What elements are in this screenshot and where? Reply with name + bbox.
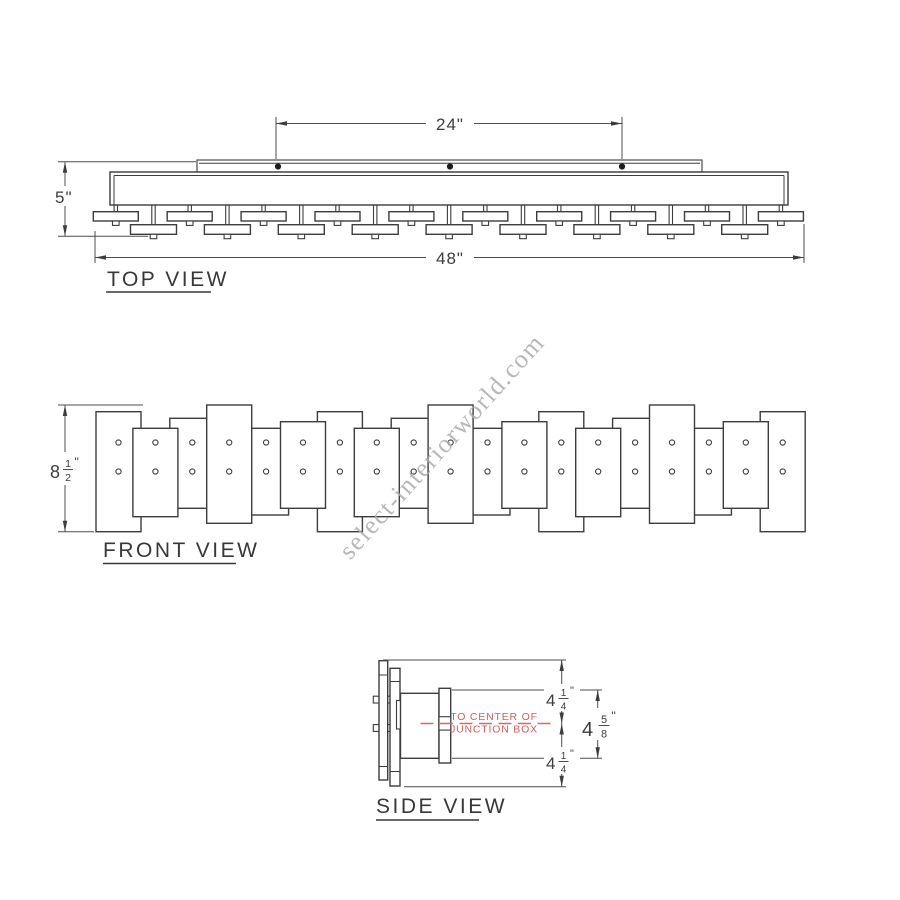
dim-8-den: 2 bbox=[65, 472, 71, 484]
bar-tab bbox=[372, 234, 379, 238]
bar-tab bbox=[186, 221, 193, 225]
panel-hole bbox=[264, 440, 269, 445]
panel-hole bbox=[116, 440, 121, 445]
bar-stem bbox=[114, 205, 117, 212]
mount-screw-dot bbox=[447, 163, 453, 169]
dim-overall-whole: 4 bbox=[582, 719, 593, 741]
bar-stem bbox=[705, 205, 708, 212]
glass-bar-bottom bbox=[204, 225, 250, 235]
side-view-title: SIDE VIEW bbox=[376, 795, 507, 818]
top-view-title: TOP VIEW bbox=[107, 268, 229, 291]
panel-hole bbox=[374, 469, 379, 474]
bar-tab bbox=[668, 234, 675, 238]
bar-stem bbox=[336, 205, 339, 212]
dim-24: 24" bbox=[276, 113, 622, 159]
bar-tab bbox=[704, 221, 711, 225]
panel-hole bbox=[743, 440, 748, 445]
panel-hole bbox=[522, 440, 527, 445]
panel-hole bbox=[300, 469, 305, 474]
panel-hole bbox=[633, 469, 638, 474]
glass-bar-top bbox=[611, 212, 656, 221]
bar-tab bbox=[150, 234, 157, 238]
panel-hole bbox=[411, 440, 416, 445]
panel-hole bbox=[153, 469, 158, 474]
dim-upper-num: 1 bbox=[561, 688, 567, 699]
bar-stem bbox=[188, 205, 191, 212]
panel-hole bbox=[596, 469, 601, 474]
panel-hole bbox=[374, 440, 379, 445]
bar-stem bbox=[152, 205, 155, 225]
glass-bar-bottom bbox=[426, 225, 472, 235]
panel-hole bbox=[190, 440, 195, 445]
glass-bar-bottom bbox=[278, 225, 324, 235]
bar-stem bbox=[374, 205, 377, 225]
glass-bar-top bbox=[685, 212, 730, 221]
technical-drawing: 24" 5" 48" TOP VIEW bbox=[0, 0, 900, 900]
front-view-title: FRONT VIEW bbox=[103, 539, 259, 562]
glass-edge-front-row bbox=[379, 661, 388, 780]
dim-lower-num: 1 bbox=[561, 751, 567, 762]
glass-bar-top bbox=[315, 212, 360, 221]
dim-48-label: 48" bbox=[436, 249, 464, 268]
panel-hole bbox=[780, 440, 785, 445]
panel-hole bbox=[669, 469, 674, 474]
bar-tab bbox=[520, 234, 527, 238]
panel-hole bbox=[227, 440, 232, 445]
bar-tab bbox=[594, 234, 601, 238]
dim-upper-den: 4 bbox=[561, 702, 567, 713]
bar-stem bbox=[743, 205, 746, 225]
dim-24-label: 24" bbox=[436, 115, 464, 134]
bar-stem bbox=[484, 205, 487, 212]
panel-hole bbox=[559, 440, 564, 445]
bar-stem bbox=[226, 205, 229, 225]
glass-bar-top bbox=[463, 212, 508, 221]
glass-bar-top bbox=[167, 212, 212, 221]
panel-hole bbox=[669, 440, 674, 445]
bar-stem bbox=[558, 205, 561, 212]
bar-stem bbox=[779, 205, 782, 212]
dim-overall-den: 8 bbox=[601, 729, 607, 741]
glass-panel bbox=[207, 405, 252, 523]
dim-8-num: 1 bbox=[65, 458, 71, 470]
glass-bar-bottom bbox=[574, 225, 620, 235]
dim-upper-inch: " bbox=[570, 685, 574, 697]
panel-hole bbox=[743, 469, 748, 474]
bar-stem bbox=[262, 205, 265, 212]
bar-tab bbox=[408, 221, 415, 225]
dim-8-whole: 8 bbox=[50, 462, 60, 482]
glass-bar-bottom bbox=[500, 225, 546, 235]
panel-hole bbox=[485, 469, 490, 474]
bar-stem bbox=[631, 205, 634, 212]
dim-overall-num: 5 bbox=[601, 714, 607, 726]
bar-stem bbox=[669, 205, 672, 225]
panel-hole bbox=[116, 469, 121, 474]
bar-tab bbox=[334, 221, 341, 225]
panel-hole bbox=[264, 469, 269, 474]
glass-bar-stems bbox=[114, 205, 783, 225]
panel-hole bbox=[633, 440, 638, 445]
bar-tab bbox=[224, 234, 231, 238]
bar-tab bbox=[446, 234, 453, 238]
mount-screw-dot bbox=[619, 163, 625, 169]
bar-stem bbox=[595, 205, 598, 225]
junction-box-body bbox=[401, 693, 440, 758]
junction-note-line2: JUNCTION BOX bbox=[450, 724, 538, 736]
panel-hole bbox=[780, 469, 785, 474]
glass-panel bbox=[281, 422, 326, 509]
glass-bar-bottom bbox=[131, 225, 177, 235]
dim-lower-inch: " bbox=[570, 748, 574, 760]
dim-8-inch: " bbox=[75, 455, 79, 469]
dim-lower-den: 4 bbox=[561, 765, 567, 776]
bar-stem bbox=[521, 205, 524, 225]
bar-stem bbox=[447, 205, 450, 225]
panel-hole bbox=[227, 469, 232, 474]
bar-tab bbox=[778, 221, 785, 225]
glass-bar-top bbox=[241, 212, 286, 221]
glass-panel bbox=[723, 422, 768, 509]
bar-tab bbox=[741, 234, 748, 238]
glass-bar-bottom bbox=[648, 225, 694, 235]
dim-overall-inch: " bbox=[612, 709, 616, 723]
fixture-body bbox=[110, 172, 788, 205]
panel-hole bbox=[522, 469, 527, 474]
panel-hole bbox=[559, 469, 564, 474]
glass-bar-top bbox=[537, 212, 582, 221]
panel-hole bbox=[337, 440, 342, 445]
dim-lower-whole: 4 bbox=[546, 754, 555, 773]
mount-screw-dot bbox=[275, 163, 281, 169]
bar-tab bbox=[260, 221, 267, 225]
bar-tab bbox=[113, 221, 120, 225]
bar-tab bbox=[556, 221, 563, 225]
glass-bar-bottom bbox=[722, 225, 768, 235]
dim-4-5-8: 4 5 8 " bbox=[580, 690, 620, 758]
bar-stem bbox=[410, 205, 413, 212]
glass-bar-bottom bbox=[352, 225, 398, 235]
glass-panel bbox=[502, 422, 547, 509]
panel-hole bbox=[153, 440, 158, 445]
panel-hole bbox=[596, 440, 601, 445]
glass-bar-top bbox=[758, 212, 803, 221]
panel-hole bbox=[300, 440, 305, 445]
top-view-group: 24" 5" 48" TOP VIEW bbox=[52, 113, 804, 292]
glass-bar-top bbox=[93, 212, 138, 221]
junction-note-line1: TO CENTER OF bbox=[450, 711, 538, 723]
bar-tab bbox=[630, 221, 637, 225]
dim-upper-whole: 4 bbox=[546, 691, 555, 710]
dim-5-label: 5" bbox=[55, 188, 73, 207]
panel-hole bbox=[448, 469, 453, 474]
panel-hole bbox=[706, 440, 711, 445]
bar-tab bbox=[482, 221, 489, 225]
panel-hole bbox=[190, 469, 195, 474]
glass-bar-top bbox=[389, 212, 434, 221]
panel-hole bbox=[485, 440, 490, 445]
drawing-page: 24" 5" 48" TOP VIEW bbox=[0, 0, 900, 900]
bar-stem bbox=[300, 205, 303, 225]
glass-panel bbox=[650, 405, 695, 523]
side-view-group: TO CENTER OF JUNCTION BOX 4 1 4 " 4 1 4 … bbox=[373, 660, 620, 820]
bar-tab bbox=[298, 234, 305, 238]
panel-hole bbox=[706, 469, 711, 474]
panel-hole bbox=[337, 469, 342, 474]
